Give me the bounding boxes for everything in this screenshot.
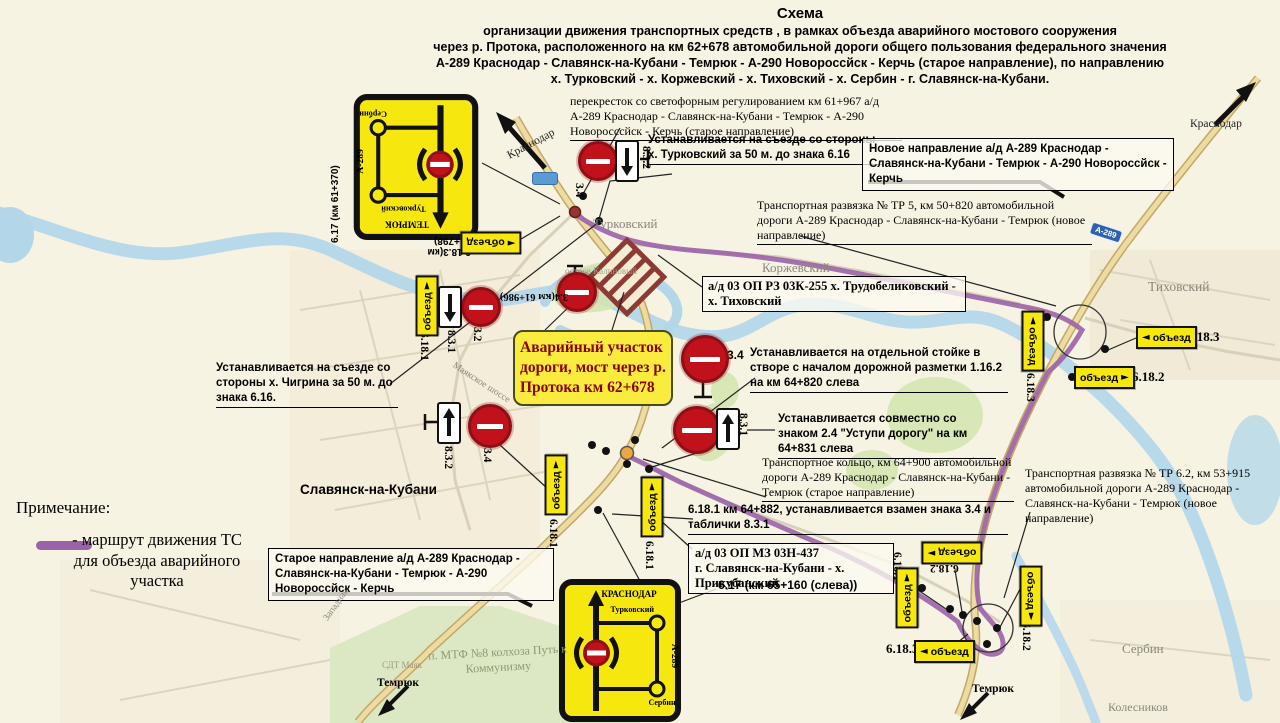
scheme-a289-label: А-289 — [669, 644, 679, 669]
detour-label: объезд — [421, 292, 433, 330]
down-arrow-icon — [444, 292, 456, 322]
bus-stop-icon — [532, 172, 558, 185]
no-entry-sign-34-junction — [578, 141, 618, 181]
page-title: Схема организации движения транспортных … — [320, 5, 1280, 87]
note-give-way: Устанавливается совместно со знаком 2.4 … — [778, 412, 996, 459]
place-turkovsky: Турковский — [593, 216, 658, 232]
note-turkovsky-exit: Устанавливается на съезде со стороны х. … — [648, 133, 883, 165]
detour-label: объезд — [1027, 327, 1039, 365]
detour-arrow-right-icon: ► — [647, 483, 657, 491]
scheme-a289-label: А-289 — [355, 149, 366, 174]
detour-arrow-right-icon: ► — [902, 574, 912, 582]
sign-label-6181: 6.18.1 — [643, 541, 655, 570]
note-chigrina-exit: Устанавливается на съезде со стороны х. … — [216, 361, 398, 408]
plate-sign-832-up — [437, 402, 461, 444]
detour-sign-6183-south-left: ◄ объезд — [914, 640, 975, 663]
detour-label: объезд — [901, 584, 913, 622]
sign-label-34-km: 3.4(км 61+986) — [486, 291, 568, 302]
detour-label: объезд — [1153, 332, 1191, 344]
detour-sign-6182-south-flipped: объезд ► — [922, 542, 983, 565]
no-entry-sign-34-southwest — [468, 404, 512, 448]
scheme-sign-graphic: ТЕМРЮК Турковский Сербин А-289 — [352, 93, 480, 241]
detour-arrow-right-icon: ► — [1121, 373, 1129, 383]
sign-label-34-prefix: 3.4 — [727, 348, 744, 364]
scheme-dest-label: ТЕМРЮК — [385, 220, 429, 230]
note-transport-ring: Транспортное кольцо, км 64+900 автомобил… — [762, 455, 1014, 502]
sign-label-617-km: 6.17 (км 61+370) — [330, 143, 341, 243]
detour-label: объезд — [931, 646, 969, 658]
detour-sign-6182-tikhovsky-right: объезд ► — [1074, 366, 1135, 389]
detour-sign-6183-tikhovsky-left: ◄ объезд — [1136, 326, 1197, 349]
new-direction-box: Новое направление а/д А-289 Краснодар - … — [862, 138, 1174, 191]
place-serbin: Сербин — [1122, 641, 1164, 657]
road-03k255-box: а/д 03 ОП РЗ 03К-255 х. Трудобеликовский… — [702, 276, 966, 312]
down-arrow-icon — [621, 146, 633, 176]
scheme-serbin-label: Сербин — [648, 698, 675, 707]
scheme-turkovsky-label: Турковский — [611, 605, 655, 614]
scheme-dest-label: КРАСНОДАР — [601, 589, 657, 599]
detour-arrow-right-icon: ► — [928, 548, 936, 558]
detour-arrow-right-icon: ► — [551, 461, 561, 469]
detour-label: объезд — [1025, 572, 1037, 610]
sign-label-831: 8.3.1 — [737, 413, 749, 436]
detour-arrow-left-icon: ◄ — [920, 647, 928, 657]
note-tr62: Транспортная развязка № ТР 6.2, км 53+91… — [1025, 466, 1267, 526]
detour-label: объезд — [938, 547, 976, 559]
place-korzhevsky: Коржевский — [762, 260, 830, 276]
place-temryuk-se: Темрюк — [972, 683, 1014, 695]
no-entry-sign-34-ring — [673, 406, 721, 454]
place-tikhovsky: Тиховский — [1148, 279, 1209, 295]
detour-arrow-left-icon: ◄ — [1142, 333, 1150, 343]
detour-sign-6181-south-vert: объезд ► — [896, 568, 919, 629]
place-krasnodar-ne: Краснодар — [1190, 118, 1242, 130]
place-temryuk-sw: Темрюк — [377, 677, 419, 689]
sign-label-832: 8.3.2 — [442, 446, 454, 469]
sign-label-832: 8.3.2 — [640, 146, 652, 169]
sign-label-32: 3.2 — [471, 327, 483, 341]
road-03n437-line1: а/д 03 ОП МЗ 03Н-437 — [695, 546, 887, 561]
detour-arrow-left-icon: ◄ — [1028, 317, 1038, 325]
scheme-turkovsky-label: Турковский — [381, 204, 426, 213]
detour-label: объезд — [1080, 372, 1118, 384]
detour-arrow-right-icon: ► — [1026, 613, 1036, 621]
detour-label: объезд — [646, 493, 658, 531]
up-arrow-icon — [443, 408, 455, 438]
scheme-sign-617-top: ТЕМРЮК Турковский Сербин А-289 — [352, 93, 480, 241]
note-tr5: Транспортная развязка № ТР 5, км 50+820 … — [757, 198, 1092, 245]
detour-sign-6181-west: объезд ► — [416, 276, 439, 337]
place-kolesnikov: Колесников — [1108, 700, 1168, 715]
note-6181-replace: 6.18.1 км 64+882, устанавливается взамен… — [688, 503, 1008, 535]
detour-sign-6181-ring-right: объезд ► — [641, 477, 664, 538]
title-heading: Схема — [320, 5, 1280, 23]
place-sdt-mayak: СДТ Маяк — [382, 660, 422, 670]
sign-label-6182: 6.18.2 — [1132, 369, 1165, 385]
legend-route-description: - маршрут движения ТС для объезда аварий… — [62, 530, 252, 592]
up-arrow-icon — [722, 414, 734, 444]
detour-arrow-right-icon: ► — [422, 282, 432, 290]
legend-heading: Примечание: — [16, 498, 110, 518]
roundabout-marker — [621, 447, 634, 460]
emergency-section-box: Аварийный участок дороги, мост через р. … — [513, 330, 673, 406]
no-entry-sign-34-stand — [681, 335, 729, 383]
sign-label-34: 3.4 — [481, 448, 493, 462]
sign-label-6183: 6.18.3 — [1024, 373, 1036, 402]
sign-label-6181: 6.18.1 — [547, 519, 559, 548]
legend-line1: - маршрут движения ТС — [62, 530, 252, 551]
plate-sign-831-down — [438, 286, 462, 328]
detour-sign-6181-ring-left: объезд ► — [545, 455, 568, 516]
detour-sign-6183-tikhovsky-vert: ◄ объезд — [1022, 311, 1045, 372]
detour-scheme-map: Схема организации движения транспортных … — [0, 0, 1280, 723]
signal-junction-marker — [570, 207, 581, 218]
detour-arrow-left-icon: ◄ — [508, 238, 516, 248]
detour-label: объезд — [467, 237, 505, 249]
detour-label: объезд — [550, 471, 562, 509]
legend-line3: участка — [62, 571, 252, 592]
old-direction-box: Старое направление а/д А-289 Краснодар -… — [268, 548, 554, 601]
sign-label-831: 8.3.1 — [445, 330, 457, 353]
sign-label-34: 3.4 — [573, 183, 585, 197]
sign-label-6183-km: 6.18.3(км 61+798) — [391, 235, 471, 257]
plate-sign-832-down — [615, 140, 639, 182]
detour-sign-6182-south-vert: объезд ► — [1020, 566, 1043, 627]
note-617-bottom: 6.17 (км 65+160 (слева)) — [718, 578, 857, 594]
detour-sign-6183-top: ◄ объезд — [461, 232, 522, 255]
scheme-serbin-label: Сербин — [359, 109, 387, 118]
note-separate-stand: Устанавливается на отдельной стойке в ст… — [750, 346, 1008, 393]
place-slavyansk: Славянск-на-Кубани — [300, 482, 437, 497]
legend-line2: для объезда аварийного — [62, 551, 252, 572]
